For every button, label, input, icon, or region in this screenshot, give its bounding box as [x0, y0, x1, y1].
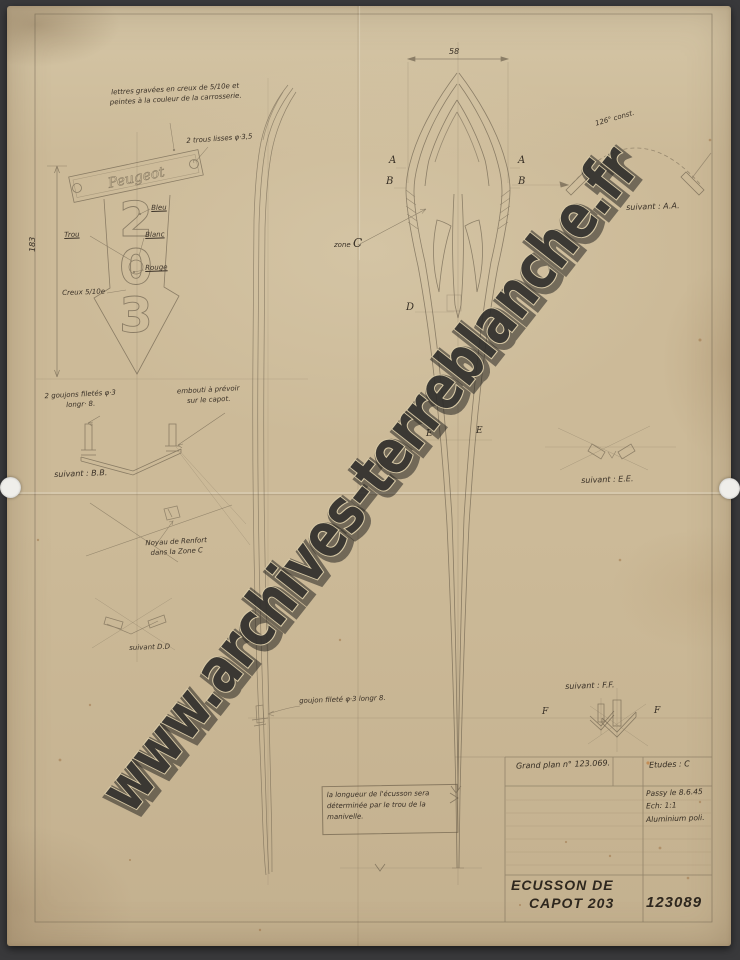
- drawing-number: 123089: [646, 894, 702, 911]
- annotation-layer: lettres gravées en creux de 5/10e et pei…: [0, 0, 740, 960]
- marker-f-right: F: [654, 706, 660, 716]
- angle-note: 126° const.: [594, 108, 635, 129]
- section-label-aa: suivant : A.A.: [626, 201, 680, 213]
- length-note-line1: la longueur de l'écusson sera: [327, 789, 430, 799]
- label-blanc: Blanc: [145, 229, 165, 240]
- drawing-title-line1: ECUSSON DE: [511, 877, 614, 893]
- label-bleu: Bleu: [151, 202, 167, 213]
- scanned-drawing: Peugeot 2 0 3: [0, 0, 740, 960]
- noyau-note: Noyau de Renfort dans la Zone C: [132, 534, 221, 559]
- material-note: Aluminium poli.: [646, 811, 705, 826]
- marker-b-right: B: [518, 177, 525, 187]
- etudes-ref: Etudes : C: [649, 759, 690, 769]
- zone-word: zone: [334, 241, 351, 249]
- embouti-note-line2: sur le capot.: [187, 395, 231, 405]
- goujons-note-line1: 2 goujons filetés φ·3: [44, 389, 116, 401]
- goujon-filete-note: goujon fileté φ·3 longr 8.: [299, 693, 386, 706]
- section-label-bb: suivant : B.B.: [54, 468, 107, 480]
- section-label-dd: suivant D.D: [129, 642, 170, 653]
- punch-hole-left: [0, 477, 21, 498]
- label-trou: Trou: [64, 229, 80, 240]
- marker-a-right: A: [518, 156, 525, 166]
- holes-note: 2 trous lisses φ·3,5: [186, 131, 253, 146]
- punch-hole-right: [719, 478, 740, 499]
- marker-c: C: [353, 236, 362, 250]
- marker-b-left: B: [386, 177, 393, 187]
- marker-e-right: E: [476, 426, 483, 436]
- marker-e-left: E: [426, 429, 433, 439]
- noyau-note-line2: dans la Zone C: [150, 546, 203, 557]
- grand-plan-ref: Grand plan n° 123.069.: [516, 758, 610, 770]
- marker-a-left: A: [389, 156, 396, 166]
- section-label-ff: suivant : F.F.: [565, 680, 615, 692]
- length-note-line2: déterminée par le trou de la: [327, 800, 426, 810]
- length-note-box: la longueur de l'écusson sera déterminée…: [322, 784, 459, 835]
- length-note-line3: manivelle.: [327, 812, 364, 821]
- section-label-ee: suivant : E.E.: [581, 474, 634, 486]
- engraving-note: lettres gravées en creux de 5/10e et pei…: [100, 80, 251, 108]
- goujons-note: 2 goujons filetés φ·3 longr· 8.: [30, 387, 131, 412]
- dimension-183: 183: [28, 237, 38, 252]
- marker-f-left: F: [542, 707, 548, 717]
- zone-c-label: zone C: [334, 238, 362, 250]
- drawing-title-line2: CAPOT 203: [529, 895, 614, 911]
- dimension-58: 58: [449, 47, 459, 57]
- goujons-note-line2: longr· 8.: [66, 400, 96, 410]
- marker-d: D: [406, 303, 414, 313]
- label-creux: Creux 5/10e: [62, 287, 105, 298]
- scale-note: Ech: 1:1: [646, 798, 677, 812]
- embouti-note: embouti à prévoir sur le capot.: [168, 383, 249, 407]
- label-rouge: Rouge: [145, 262, 168, 273]
